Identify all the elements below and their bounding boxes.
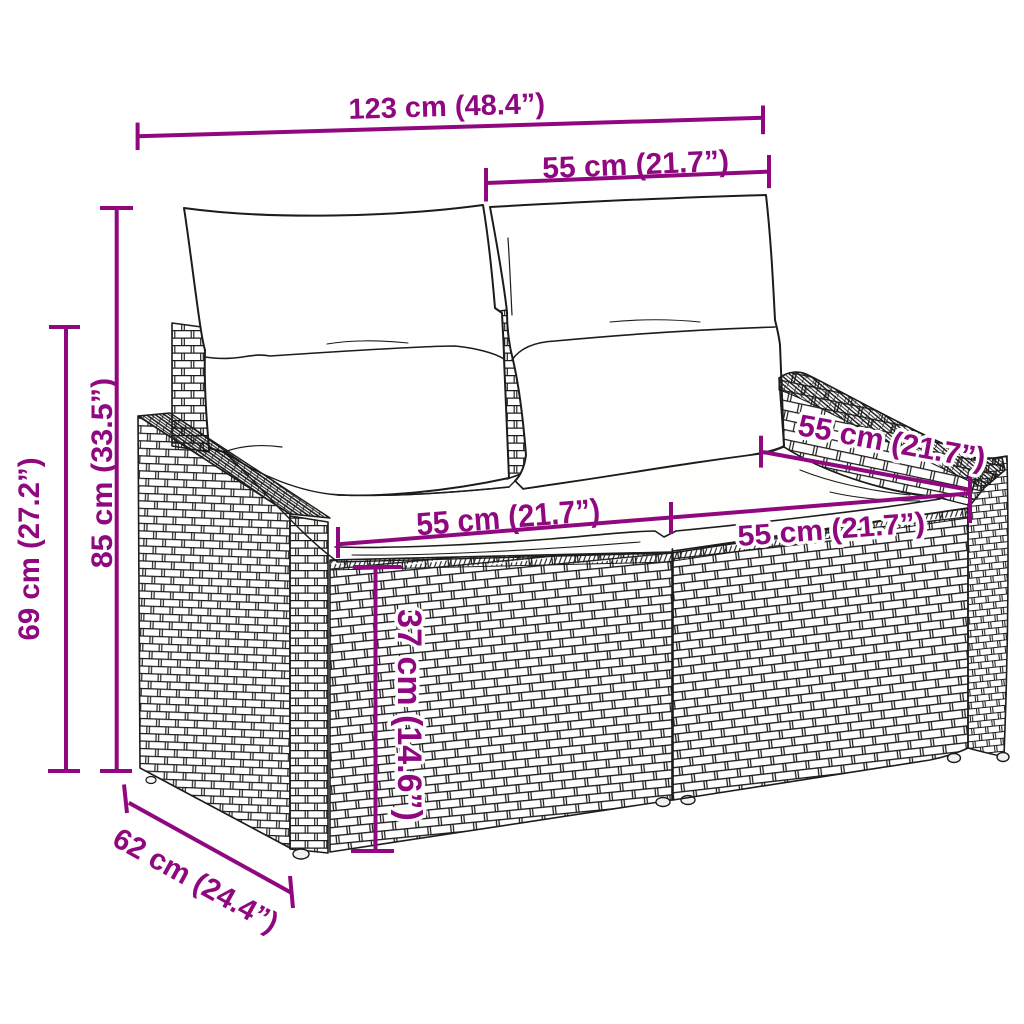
- svg-text:37 cm (14.6”): 37 cm (14.6”): [390, 609, 428, 821]
- svg-text:85 cm (33.5”): 85 cm (33.5”): [86, 378, 119, 568]
- svg-text:123 cm (48.4”): 123 cm (48.4”): [348, 88, 546, 126]
- svg-text:69 cm (27.2”): 69 cm (27.2”): [13, 458, 46, 641]
